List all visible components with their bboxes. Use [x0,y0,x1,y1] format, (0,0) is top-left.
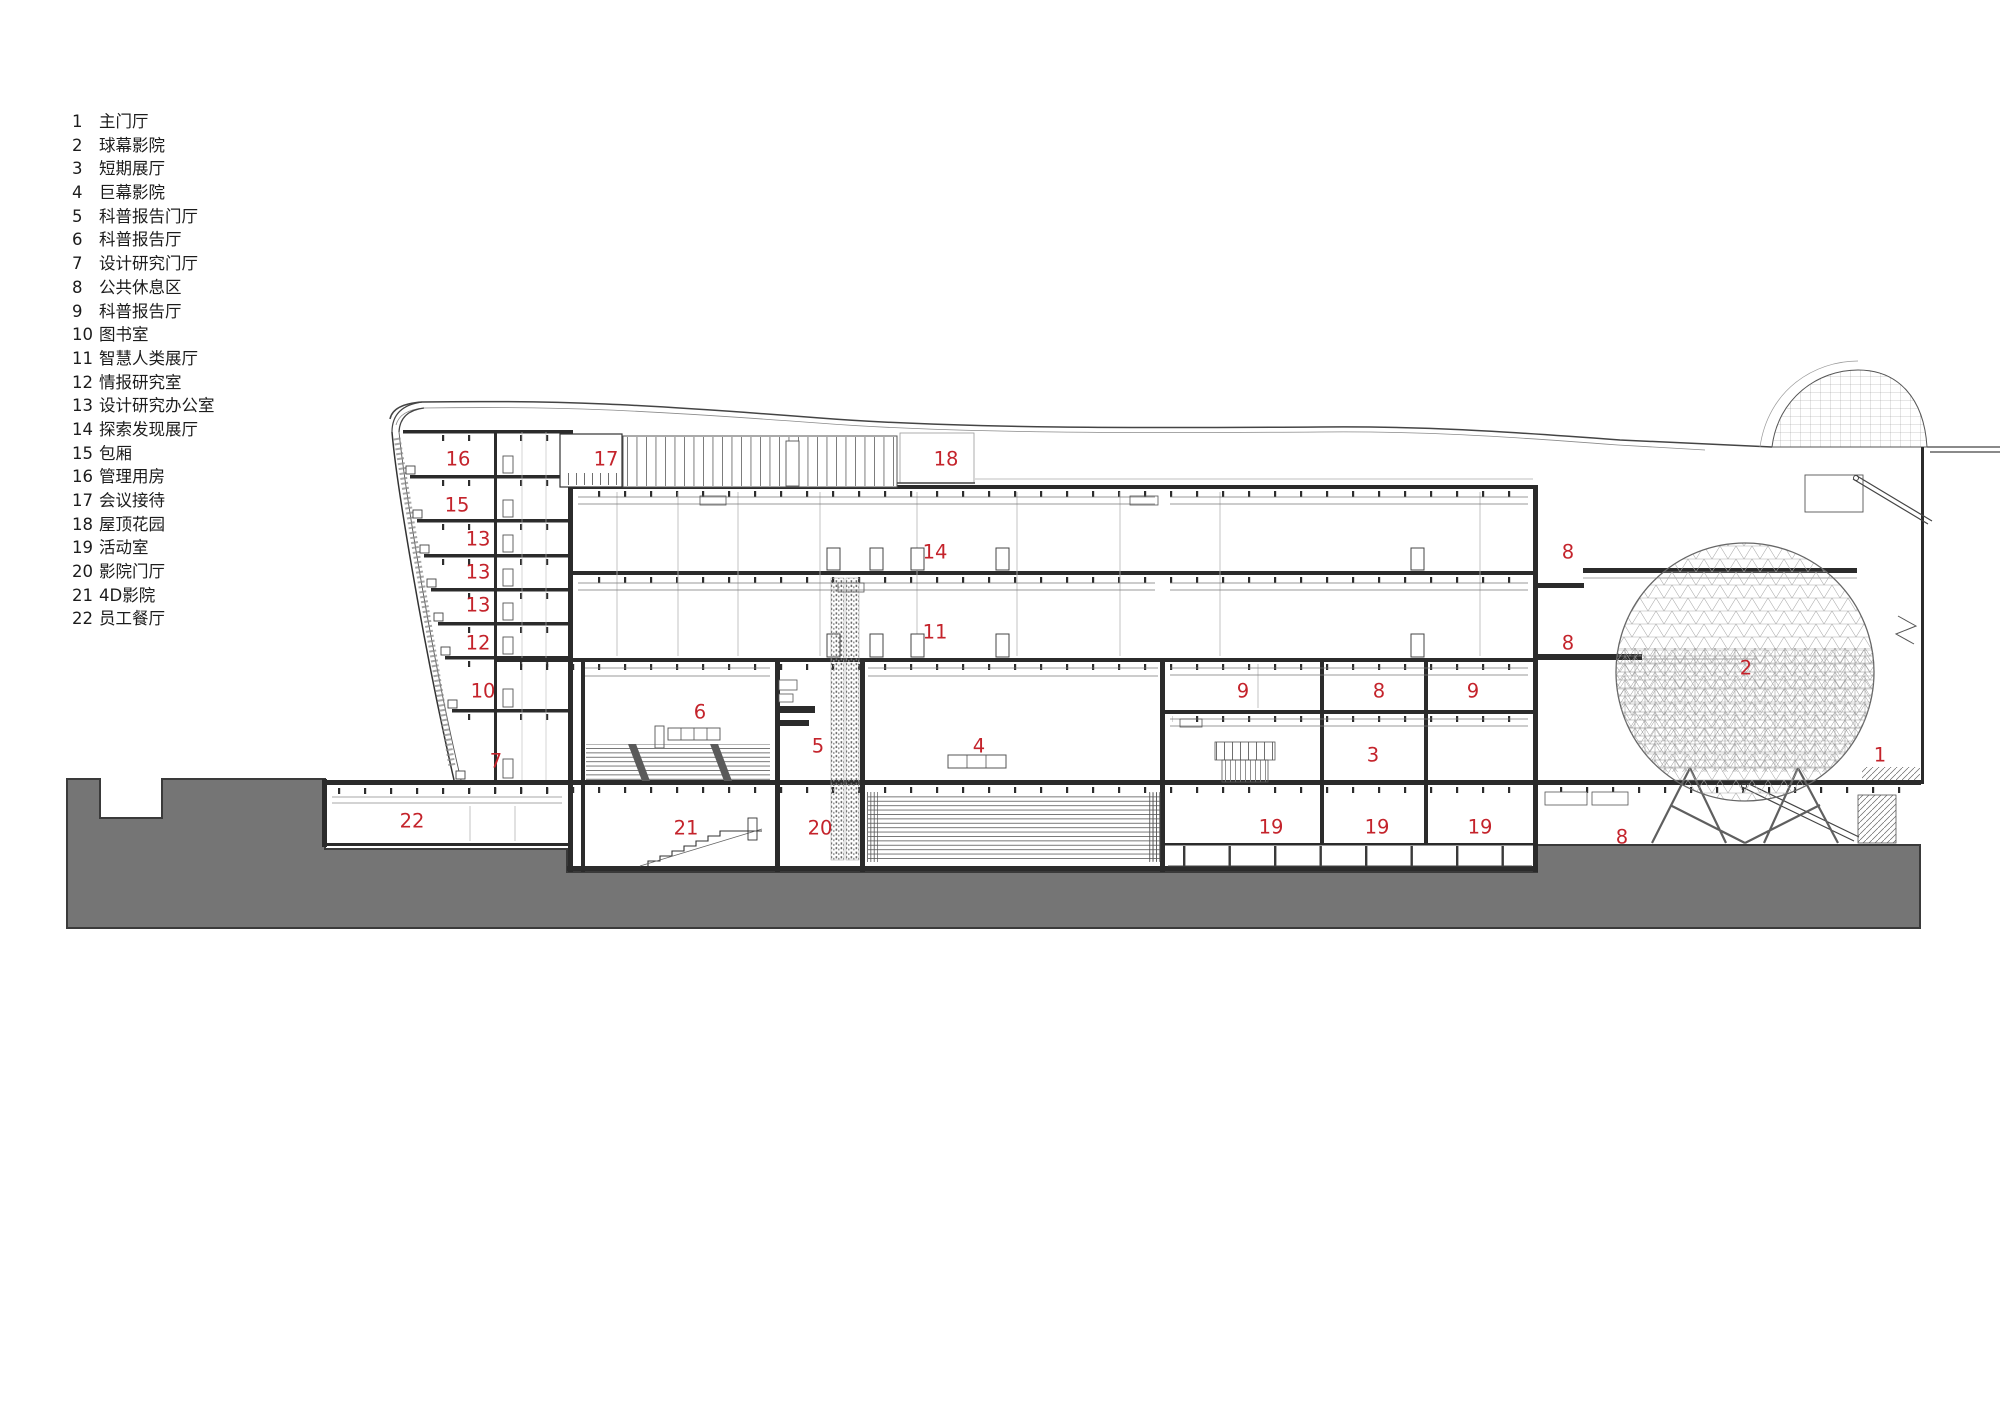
legend-item-label: 巨幕影院 [99,181,165,205]
legend-item-label: 设计研究门厅 [99,252,198,276]
room-number-label: 19 [1468,815,1493,838]
roof-penthouse [560,433,1533,487]
room-number-label: 10 [471,679,496,702]
room-number-label: 6 [694,700,706,723]
roof-dome [1760,361,1927,447]
legend-item-label: 包厢 [99,442,132,466]
legend-item: 2 球幕影院 [72,134,215,158]
legend-item: 19 活动室 [72,536,215,560]
partition-stack-3 [1215,742,1275,782]
legend-item-label: 短期展厅 [99,157,165,181]
legend-item-number: 7 [72,252,99,276]
legend-item-label: 管理用房 [99,465,165,489]
legend-item-number: 19 [72,536,99,560]
room-number-label: 19 [1365,815,1390,838]
legend-item-label: 公共休息区 [99,276,182,300]
room-number-label: 13 [466,560,491,583]
legend-item-number: 10 [72,323,99,347]
room-number-label: 2 [1740,656,1752,679]
legend-item-label: 会议接待 [99,489,165,513]
room-number-label: 13 [466,593,491,616]
room-number-label: 8 [1373,679,1385,702]
legend-item-number: 20 [72,560,99,584]
room-number-label: 8 [1562,631,1574,654]
legend-item: 10 图书室 [72,323,215,347]
legend-item: 4 巨幕影院 [72,181,215,205]
legend-item: 18 屋顶花园 [72,513,215,537]
legend-item-label: 员工餐厅 [99,607,165,631]
door-frames [827,548,1424,657]
ceiling-bands [578,496,1528,727]
room-number-label: 4 [973,734,985,757]
legend-item-number: 4 [72,181,99,205]
legend-item-label: 科普报告厅 [99,300,182,324]
architectural-section-sheet: 1 主门厅 2 球幕影院 3 短期展厅 4 巨幕影院 5 科普报告门厅 6 科普… [0,0,2000,1414]
legend-item-number: 2 [72,134,99,158]
room-number-label: 7 [490,749,502,772]
room-number-label: 21 [674,816,699,839]
room-number-label: 20 [808,816,833,839]
legend-item-label: 情报研究室 [99,371,182,395]
legend-item: 13 设计研究办公室 [72,394,215,418]
room-number-label: 9 [1237,679,1249,702]
legend-item-number: 8 [72,276,99,300]
legend-item: 12 情报研究室 [72,371,215,395]
legend-item-number: 12 [72,371,99,395]
legend-item-number: 1 [72,110,99,134]
legend-item-label: 探索发现展厅 [99,418,198,442]
legend-item-number: 14 [72,418,99,442]
room-number-label: 3 [1367,743,1379,766]
legend-item-number: 11 [72,347,99,371]
room-number-label: 19 [1259,815,1284,838]
legend-item: 3 短期展厅 [72,157,215,181]
legend-item-label: 影院门厅 [99,560,165,584]
legend-item-label: 屋顶花园 [99,513,165,537]
legend-item-number: 6 [72,228,99,252]
room-number-label: 8 [1562,540,1574,563]
legend-item-label: 活动室 [99,536,149,560]
room-number-label: 11 [923,620,948,643]
legend-item: 5 科普报告门厅 [72,205,215,229]
room-number-label: 18 [934,447,959,470]
legend-item-label: 球幕影院 [99,134,165,158]
auditorium-6 [585,668,770,781]
room-number-label: 15 [445,493,470,516]
legend-item: 16 管理用房 [72,465,215,489]
legend-item-label: 图书室 [99,323,149,347]
legend-item: 11 智慧人类展厅 [72,347,215,371]
legend-item: 9 科普报告厅 [72,300,215,324]
legend-item-number: 21 [72,584,99,608]
room-number-label: 8 [1616,825,1628,848]
room-number-label: 5 [812,734,824,757]
legend-item-number: 9 [72,300,99,324]
room-number-label: 16 [446,447,471,470]
room-number-label: 13 [466,527,491,550]
legend-item-number: 13 [72,394,99,418]
legend-item-number: 5 [72,205,99,229]
legend-item: 15 包厢 [72,442,215,466]
legend-item: 14 探索发现展厅 [72,418,215,442]
legend-item-label: 主门厅 [99,110,149,134]
legend-item: 8 公共休息区 [72,276,215,300]
legend-item-number: 17 [72,489,99,513]
cinema-21 [640,818,762,866]
room-number-label: 12 [466,631,491,654]
imax-hall-4 [866,668,1160,862]
legend: 1 主门厅 2 球幕影院 3 短期展厅 4 巨幕影院 5 科普报告门厅 6 科普… [72,110,215,631]
room-number-label: 17 [594,447,619,470]
room-number-label: 14 [923,540,948,563]
building-section-drawing [0,0,2000,1414]
room-number-label: 22 [400,809,425,832]
legend-item: 7 设计研究门厅 [72,252,215,276]
room-number-label: 9 [1467,679,1479,702]
room-number-label: 1 [1874,743,1886,766]
legend-item-number: 22 [72,607,99,631]
geodesic-sphere [1613,543,1877,843]
legend-item-number: 18 [72,513,99,537]
legend-item: 22 员工餐厅 [72,607,215,631]
legend-item-label: 设计研究办公室 [99,394,215,418]
legend-item-label: 科普报告门厅 [99,205,198,229]
legend-item-number: 3 [72,157,99,181]
legend-item: 1 主门厅 [72,110,215,134]
legend-item-label: 科普报告厅 [99,228,182,252]
legend-item-label: 智慧人类展厅 [99,347,198,371]
legend-item: 6 科普报告厅 [72,228,215,252]
legend-item-number: 15 [72,442,99,466]
legend-item: 21 4D影院 [72,584,215,608]
legend-item-number: 16 [72,465,99,489]
legend-item: 20 影院门厅 [72,560,215,584]
legend-item-label: 4D影院 [99,584,155,608]
legend-item: 17 会议接待 [72,489,215,513]
